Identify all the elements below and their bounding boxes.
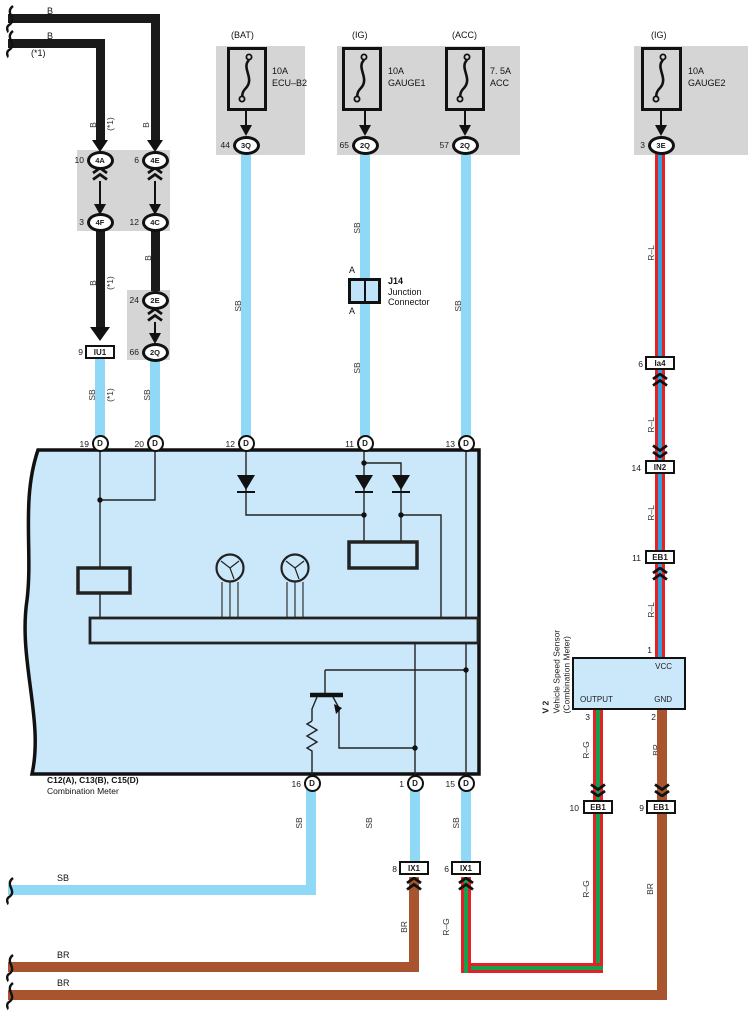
fuse-terminal-ig1: (IG): [352, 30, 368, 40]
wire-b-1-horizontal: [8, 14, 160, 23]
fuse-acc: [445, 47, 485, 111]
fuse-terminal-acc: (ACC): [452, 30, 477, 40]
connector-2e-pin: 24: [123, 295, 139, 305]
fuse-icon: [345, 50, 378, 107]
wire-note: (*1): [31, 48, 46, 58]
chevron-up-icon: [146, 308, 164, 322]
wire-b-2-horizontal: [8, 39, 105, 48]
fuse-gauge1: [342, 47, 382, 111]
connector-iu1-pin: 9: [67, 347, 83, 357]
wire-br-ix1: [409, 877, 419, 972]
wire-sb-2q-to-pin20: [150, 361, 160, 443]
j14-line2: Connector: [388, 297, 430, 308]
j14-cell: [366, 281, 379, 301]
connector-4f-pin: 3: [68, 217, 84, 227]
connector-eb1-11-pin: 11: [625, 553, 641, 563]
fuse-rating: 7. 5A: [490, 66, 511, 76]
connector-ix1-8: IX1: [399, 861, 429, 875]
v2-pin-output: 3: [578, 712, 590, 722]
wire-label-rg: R–G: [440, 910, 452, 944]
connector-eb1-9-pin: 9: [628, 803, 644, 813]
chevron-up-icon: [651, 373, 669, 387]
combination-meter: [12, 448, 482, 798]
meter-pin-13: D: [458, 435, 475, 452]
v2-output: OUTPUT: [580, 695, 613, 704]
wire-rl-3e-to-v2: [655, 154, 665, 658]
chevron-up-icon: [457, 877, 475, 891]
fuse-rating: 10A: [272, 66, 288, 76]
meter-pin-1: D: [407, 775, 424, 792]
fuse-icon: [448, 50, 481, 107]
continuation-squiggle-icon: [2, 954, 16, 982]
continuation-squiggle-icon: [2, 5, 16, 33]
mating-line: [154, 181, 156, 206]
meter-pin-19: D: [92, 435, 109, 452]
connector-4e-pin: 6: [123, 155, 139, 165]
wire-rg-ix1: [461, 877, 471, 973]
connector-ia4: Ia4: [645, 356, 675, 370]
wire-sb-pin16: [306, 783, 316, 895]
j14-line1: Junction: [388, 287, 430, 298]
connector-2q-66-pin: 66: [123, 347, 139, 357]
wire-sb-bat-to-pin12: [241, 154, 251, 443]
chevron-down-icon: [653, 783, 671, 797]
connector-ix1-8-pin: 8: [381, 864, 397, 874]
wire-b-2-vertical: [96, 39, 105, 142]
wire-note-vert: (*1): [104, 266, 116, 300]
wiring-diagram: B B (*1) B (*1) B B (*1) B SB (*1) SB 4A…: [0, 0, 750, 1017]
connector-2e: 2E: [142, 291, 169, 310]
connector-3e-pin: 3: [629, 140, 645, 150]
connector-iu1: IU1: [85, 345, 115, 359]
wire-label-br-horizontal-2: BR: [57, 978, 70, 988]
connector-2q-65: 2Q: [352, 136, 379, 155]
fuse-name: GAUGE1: [388, 78, 426, 88]
connector-4a-pin: 10: [68, 155, 84, 165]
fuse-rating: 10A: [688, 66, 704, 76]
meter-pin-16: D: [304, 775, 321, 792]
wire-label-rg: R–G: [580, 733, 592, 767]
connector-2q-57: 2Q: [452, 136, 479, 155]
connector-ix1-6: IX1: [451, 861, 481, 875]
fuse-icon: [230, 50, 263, 107]
meter-pin-20: D: [147, 435, 164, 452]
j14-pin-a-top: A: [349, 265, 355, 275]
fuse-terminal-ig2: (IG): [651, 30, 667, 40]
wire-label-br: BR: [644, 872, 656, 906]
chevron-up-icon: [651, 567, 669, 581]
meter-pin-12: D: [238, 435, 255, 452]
connector-2q-66: 2Q: [142, 343, 169, 362]
fuse-icon: [644, 50, 677, 107]
connector-eb1-10-pin: 10: [563, 803, 579, 813]
arrow-into-iu1-icon: [90, 327, 110, 341]
fuse-gauge2: [641, 47, 682, 111]
v2-pin-gnd: 2: [644, 712, 656, 722]
connector-in2: IN2: [645, 460, 675, 474]
fuse-name: ECU–B2: [272, 78, 307, 88]
fuse-name: ACC: [490, 78, 509, 88]
chevron-up-icon: [405, 877, 423, 891]
continuation-squiggle-icon: [2, 982, 16, 1010]
wire-label-sb: SB: [363, 806, 375, 840]
wire-note-vert: (*1): [104, 107, 116, 141]
connector-2q-65-pin: 65: [333, 140, 349, 150]
wire-4c-to-2e: [151, 231, 160, 291]
arrow-into-3e-icon: [655, 125, 667, 136]
v2-id: V 2: [541, 602, 552, 714]
connector-eb1-9: EB1: [646, 800, 676, 814]
connector-4c: 4C: [142, 213, 169, 232]
v2-vcc: VCC: [655, 662, 672, 671]
meter-pin-11: D: [357, 435, 374, 452]
mating-line: [99, 181, 101, 206]
continuation-squiggle-icon: [2, 30, 16, 58]
fuse-name: GAUGE2: [688, 78, 726, 88]
connector-4c-pin: 12: [123, 217, 139, 227]
wire-rg-horizontal: [461, 963, 603, 973]
wire-rg-output: [593, 710, 603, 973]
connector-eb1-11: EB1: [645, 550, 675, 564]
connector-3q: 3Q: [233, 136, 260, 155]
wire-4f-to-iu1: [96, 231, 105, 328]
connector-ix1-6-pin: 6: [433, 864, 449, 874]
meter-name: Combination Meter: [47, 786, 119, 796]
arrow-into-2q65-icon: [359, 125, 371, 136]
connector-4e: 4E: [142, 151, 169, 170]
fuse-terminal-bat: (BAT): [231, 30, 254, 40]
wire-label-br-horizontal-1: BR: [57, 950, 70, 960]
chevron-down-icon: [651, 444, 669, 458]
wire-br-gnd: [657, 710, 667, 1000]
arrow-into-3q-icon: [240, 125, 252, 136]
chevron-down-icon: [589, 783, 607, 797]
wire-note-vert: (*1): [104, 378, 116, 412]
connector-eb1-10: EB1: [583, 800, 613, 814]
wire-label-sb-horizontal: SB: [57, 873, 69, 883]
j14-cell: [351, 281, 364, 301]
connector-in2-pin: 14: [625, 463, 641, 473]
wire-label-rg: R–G: [580, 872, 592, 906]
fuse-rating: 10A: [388, 66, 404, 76]
meter-outline: [25, 450, 479, 774]
v2-speed-sensor-box: VCC OUTPUT GND: [572, 657, 686, 710]
meter-pin-15: D: [458, 775, 475, 792]
connector-3e: 3E: [648, 136, 675, 155]
connector-3q-pin: 44: [214, 140, 230, 150]
meter-code: C12(A), C13(B), C15(D): [47, 775, 139, 785]
wire-br-horizontal-1: [8, 962, 419, 972]
connector-4f: 4F: [87, 213, 114, 232]
wire-label-sb: SB: [293, 806, 305, 840]
wire-sb-pin16-horizontal: [8, 885, 311, 895]
j14-code: J14: [388, 276, 430, 287]
j14-label: J14 Junction Connector: [388, 276, 430, 308]
v2-sub: (Combination Meter): [562, 602, 573, 714]
wire-b-1-vertical: [151, 14, 160, 141]
continuation-squiggle-icon: [2, 877, 16, 905]
v2-pin-vcc: 1: [640, 645, 652, 655]
wire-sb-acc-to-pin13: [461, 154, 471, 443]
connector-2q-57-pin: 57: [433, 140, 449, 150]
connector-4a: 4A: [87, 151, 114, 170]
arrow-into-2q57-icon: [459, 125, 471, 136]
connector-ia4-pin: 6: [627, 359, 643, 369]
wire-sb-iu1-to-pin19: [95, 359, 105, 443]
v2-gnd: GND: [654, 695, 672, 704]
fuse-bat: [227, 47, 267, 111]
v2-title: V 2 Vehicle Speed Sensor (Combination Me…: [541, 602, 574, 714]
j14-junction-connector: [348, 278, 381, 304]
wire-br-horizontal-2: [8, 990, 667, 1000]
j14-pin-a-bottom: A: [349, 306, 355, 316]
v2-name: Vehicle Speed Sensor: [551, 602, 562, 714]
